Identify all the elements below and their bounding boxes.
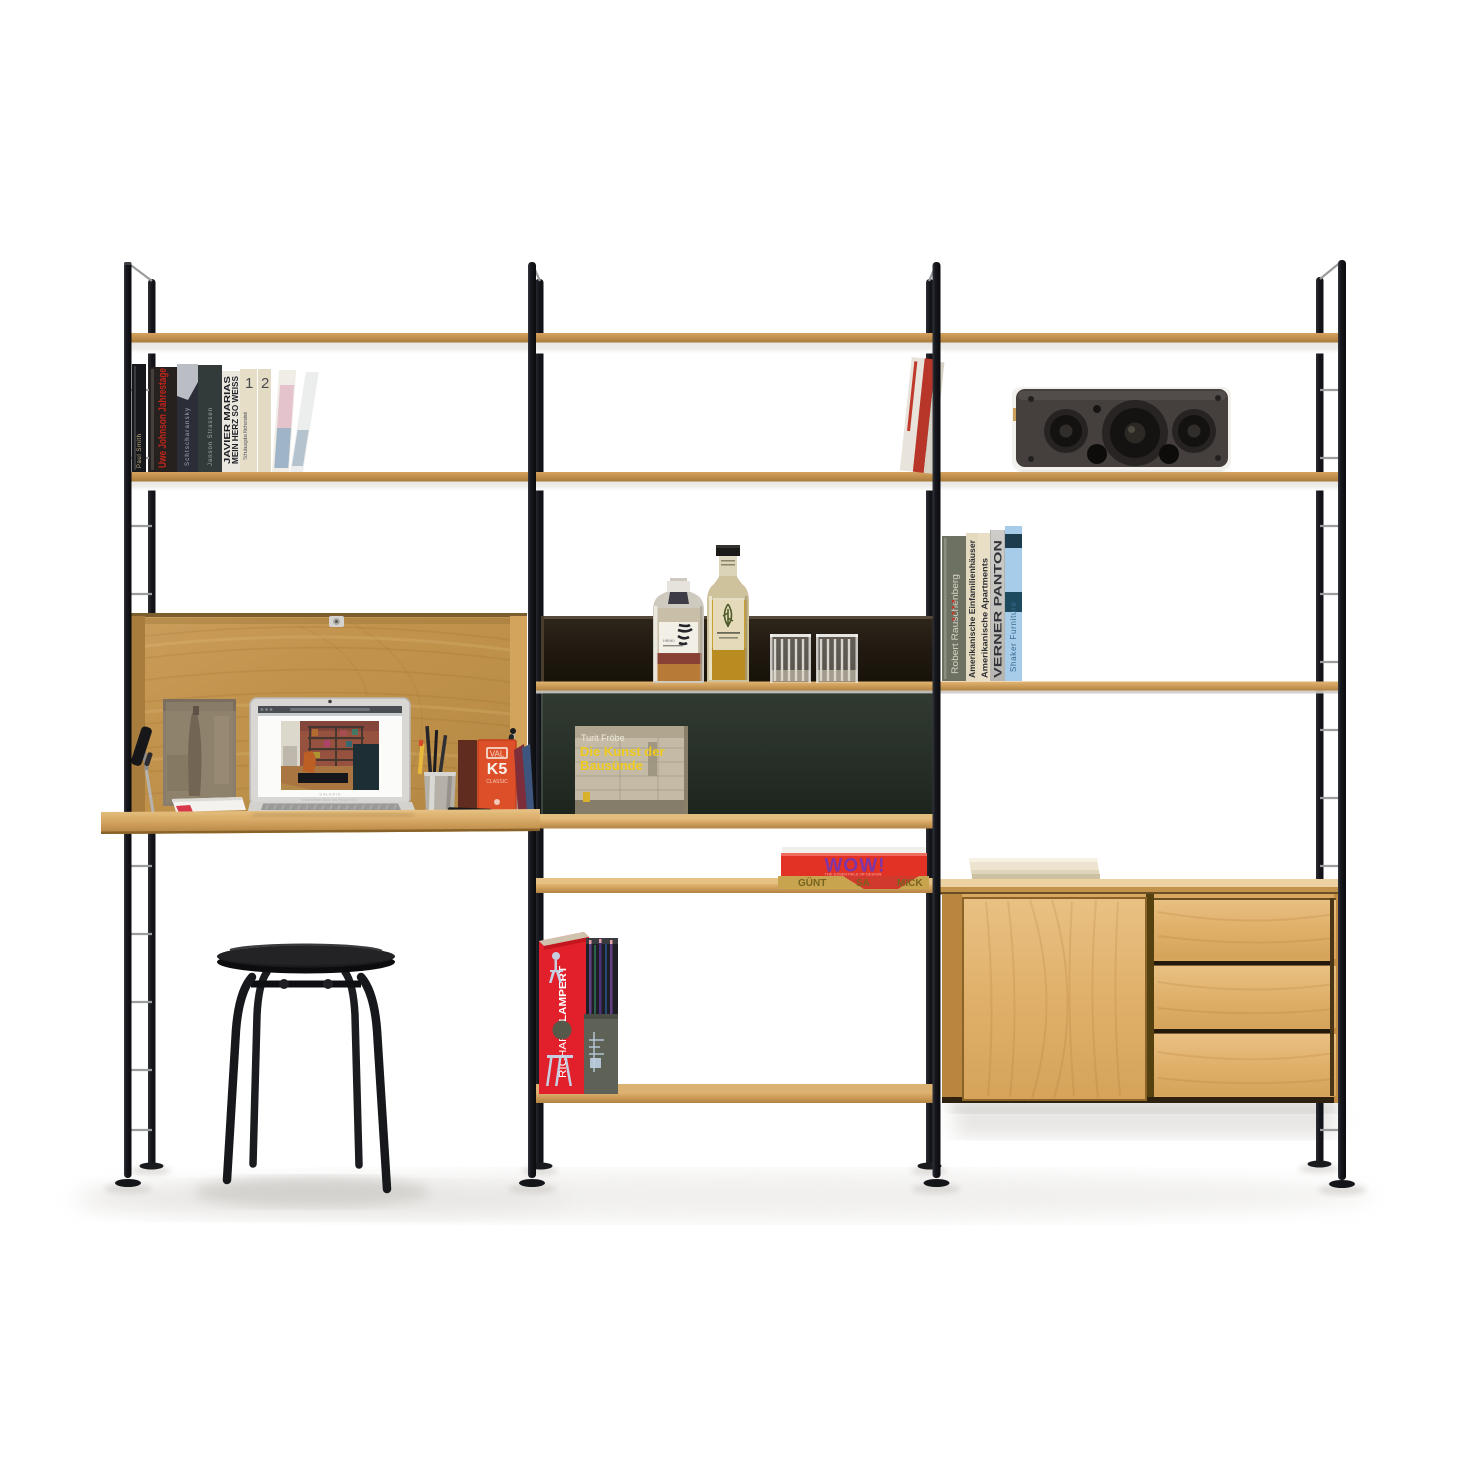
svg-text:K5: K5: [487, 761, 508, 778]
svg-text:Janson Strassen: Janson Strassen: [208, 408, 214, 466]
svg-text:Robert Rauschenberg: Robert Rauschenberg: [950, 574, 960, 674]
svg-text:Schtscharansky: Schtscharansky: [185, 408, 191, 466]
svg-text:G A L E R I E: G A L E R I E: [319, 793, 341, 797]
svg-text:Paul Smith: Paul Smith: [137, 434, 143, 468]
svg-text:Amerikanische Einfamilienhäuse: Amerikanische Einfamilienhäuser: [968, 540, 977, 678]
svg-text:HIBIKI: HIBIKI: [663, 638, 675, 643]
svg-text:GÜNT: GÜNT: [798, 876, 826, 889]
svg-text:Schulausgabe Kirchenstreit: Schulausgabe Kirchenstreit: [243, 412, 249, 460]
svg-text:1: 1: [245, 375, 253, 392]
svg-text:VERNER PANTON: VERNER PANTON: [993, 540, 1005, 678]
svg-text:MICK: MICK: [897, 878, 923, 889]
svg-text:VAL: VAL: [490, 750, 505, 759]
svg-text:Uwe Johnson Jahrestage: Uwe Johnson Jahrestage: [157, 368, 169, 468]
svg-text:Shaker Furniture: Shaker Furniture: [1009, 601, 1018, 672]
svg-text:Amerikanische Apartments: Amerikanische Apartments: [981, 557, 990, 678]
svg-text:Bausünde: Bausünde: [580, 758, 643, 773]
svg-text:THE ESSENTIALS OF DESIGN: THE ESSENTIALS OF DESIGN: [825, 872, 882, 877]
svg-text:Turit Fröbe: Turit Fröbe: [581, 733, 625, 743]
svg-text:Die Kunst der: Die Kunst der: [580, 744, 665, 759]
svg-text:CLASSIC: CLASSIC: [486, 779, 508, 785]
svg-text:2: 2: [261, 375, 269, 392]
svg-text:Wohnideen Blick ins Regal 20: Wohnideen Blick ins Regal 2017: [301, 797, 359, 802]
svg-text:MEIN HERZ SO WEISS: MEIN HERZ SO WEISS: [230, 376, 240, 464]
svg-text:SA: SA: [856, 878, 870, 889]
